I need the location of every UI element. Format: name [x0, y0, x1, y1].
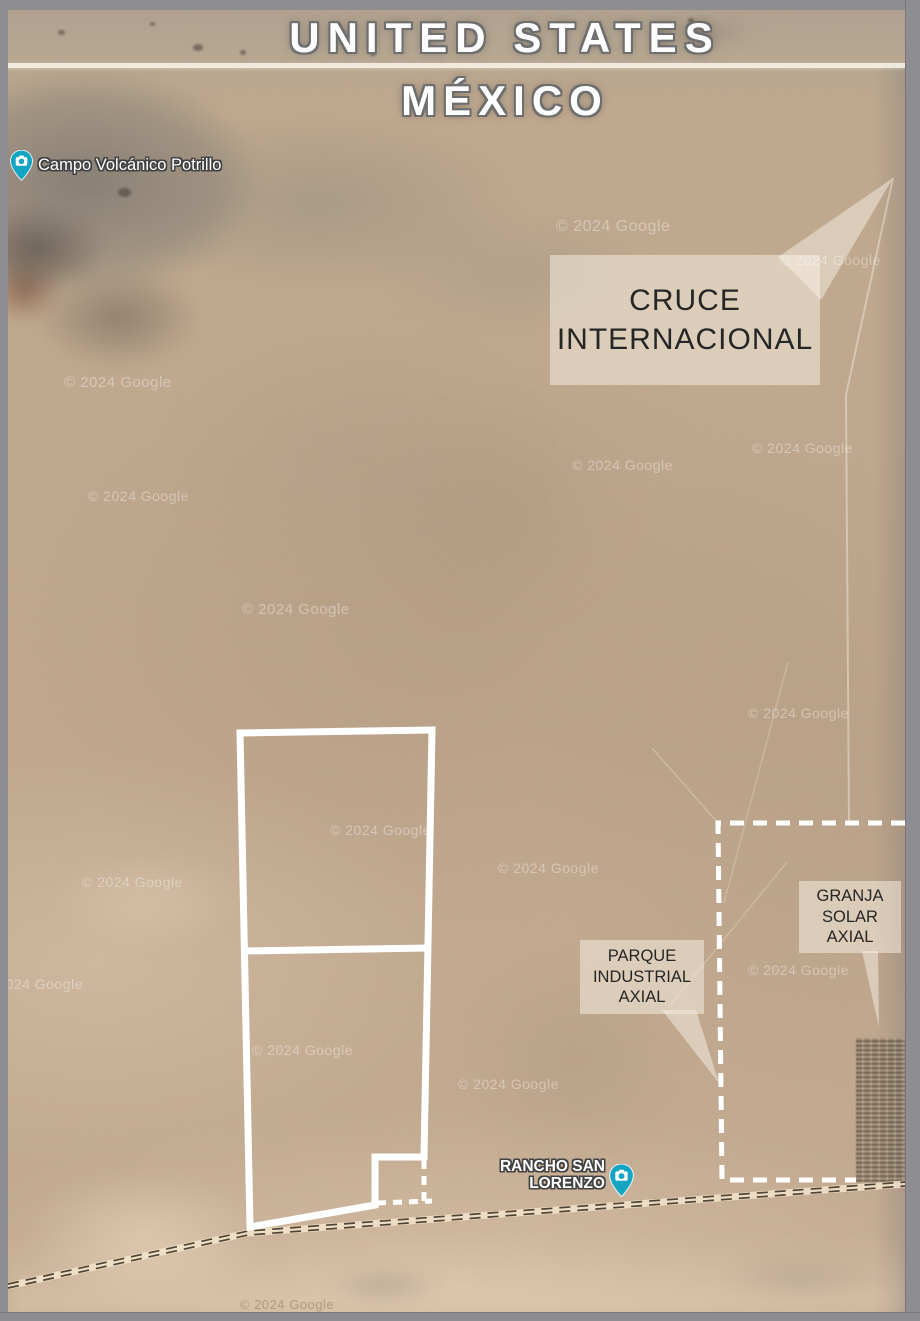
satellite-map-screenshot: UNITED STATES MÉXICO CRUCE INTERNACIONAL… — [0, 0, 920, 1321]
parque-line2: INDUSTRIAL — [580, 967, 704, 988]
parque-industrial-callout: PARQUE INDUSTRIAL AXIAL — [580, 940, 704, 1014]
parque-line1: PARQUE — [580, 946, 704, 967]
map-canvas[interactable] — [8, 10, 905, 1312]
cruce-line1: CRUCE — [550, 281, 820, 320]
camera-lens — [19, 159, 25, 165]
frame-right — [905, 0, 920, 1321]
granja-line1: GRANJA — [799, 886, 901, 907]
granja-line2: SOLAR — [799, 907, 901, 928]
rancho-label-line2: LORENZO — [470, 1175, 605, 1192]
international-border-line — [8, 63, 905, 68]
terrain-speck — [150, 22, 155, 26]
cruce-internacional-callout: CRUCE INTERNACIONAL — [550, 255, 820, 385]
rancho-label-line1: RANCHO SAN — [470, 1158, 605, 1175]
solar-farm-panels — [856, 1038, 905, 1182]
campo-volcanico-label: Campo Volcánico Potrillo — [38, 156, 221, 175]
campo-volcanico-pin[interactable] — [10, 150, 33, 181]
terrain-speck — [58, 30, 65, 35]
camera-lens — [619, 1173, 625, 1179]
frame-left — [0, 0, 8, 1321]
country-label-united-states: UNITED STATES — [240, 14, 770, 62]
country-label-mexico: MÉXICO — [240, 77, 770, 125]
granja-solar-callout: GRANJA SOLAR AXIAL — [799, 881, 901, 953]
terrain-speck — [193, 44, 203, 51]
terrain-speck — [118, 188, 131, 197]
rancho-san-lorenzo-label: RANCHO SAN LORENZO — [470, 1158, 605, 1192]
frame-bottom — [0, 1312, 920, 1321]
frame-top — [0, 0, 920, 10]
cruce-line2: INTERNACIONAL — [550, 320, 820, 359]
rancho-san-lorenzo-pin[interactable] — [608, 1164, 635, 1197]
parque-line3: AXIAL — [580, 987, 704, 1008]
granja-line3: AXIAL — [799, 927, 901, 948]
